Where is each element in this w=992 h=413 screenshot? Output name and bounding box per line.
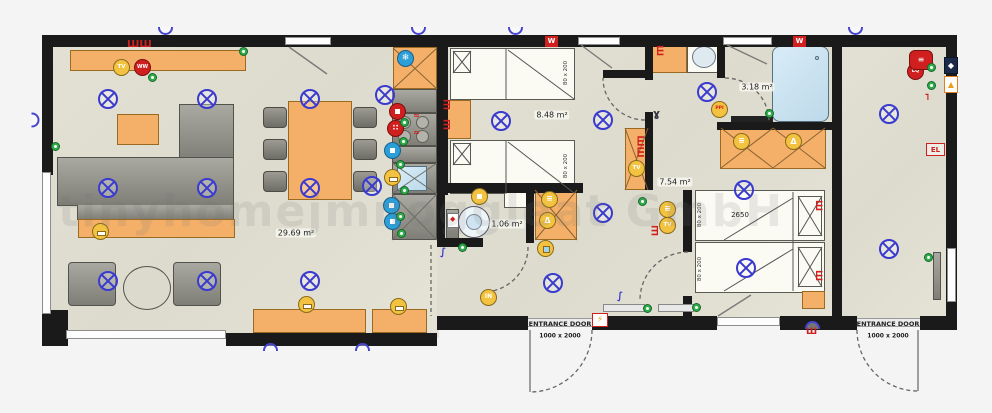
sofa-chaise[interactable] [179,104,234,161]
window[interactable] [42,172,51,314]
entrance-door-size: 1000 x 2000 [539,333,580,340]
droplet-icon: ◆ [450,216,455,223]
socket-icon[interactable] [638,197,647,206]
window[interactable] [947,248,956,302]
ceiling-light-icon[interactable] [362,176,382,196]
socket-icon[interactable] [399,137,408,146]
coffee-table[interactable] [117,114,159,145]
ceiling-light-icon[interactable] [734,180,754,200]
switch-row[interactable] [658,304,694,312]
dining-table[interactable] [288,101,352,200]
washbasin-bowl [692,46,716,68]
room-area-label: 29.69 m² [276,229,316,238]
ceiling-light-icon[interactable] [300,178,320,198]
ceiling-light-icon[interactable] [98,89,118,109]
dining-chair[interactable] [263,139,287,160]
ceiling-light-icon[interactable] [593,110,613,130]
socket-strip-icon: Ш [654,45,663,56]
dimmer-switch-icon[interactable] [92,223,109,240]
wall [592,316,717,330]
socket-icon[interactable] [458,243,467,252]
ceiling-light-icon[interactable] [98,271,118,291]
water-connection-icon[interactable] [384,142,401,159]
socket-icon[interactable] [400,186,409,195]
floor-plan: ◆ [0,0,992,413]
shelves-icon[interactable]: ≡ [733,133,750,150]
dining-chair[interactable] [263,171,287,192]
water-connection-icon[interactable] [383,197,400,214]
flame-icon: ≈ [413,112,420,120]
ceiling-light-icon[interactable] [98,178,118,198]
water-heater-icon[interactable] [537,240,554,257]
ceiling-light-icon[interactable] [300,271,320,291]
ceiling-light-icon[interactable] [491,111,511,131]
dining-chair[interactable] [353,107,377,128]
ceiling-light-icon[interactable] [879,239,899,259]
socket-strip-icon: ШШ [127,40,152,50]
wall-lamp-icon: Ш [813,200,822,211]
tv-outlet-icon[interactable]: TV [628,160,645,177]
water-supply-icon: ◆ [944,57,958,74]
washer-connection-tag: W [793,36,806,47]
socket-icon[interactable] [239,47,248,56]
pillow [453,51,471,73]
radiator[interactable] [933,252,941,300]
socket-icon[interactable] [927,63,936,72]
pipe-connection-icon: ⌐ [921,93,931,101]
ceiling-light-icon[interactable] [543,273,563,293]
bed-size-label: 80 x 200 [563,154,569,178]
wall [42,35,53,175]
socket-icon[interactable] [397,229,406,238]
flame-icon: ≈ [413,129,420,137]
wall [437,183,583,193]
tv-outlet-icon[interactable]: TV [113,59,130,76]
wall [717,122,833,130]
wall-lamp-icon: Ш [444,119,453,130]
ceiling-light-icon[interactable] [300,89,320,109]
vent-icon [848,27,863,35]
round-table[interactable] [123,266,171,310]
hook-icon: ɣ [653,108,660,119]
wall [603,70,653,78]
ceiling-light-icon[interactable] [197,89,217,109]
ceiling-light-icon[interactable] [197,178,217,198]
wall [42,35,957,47]
window[interactable] [66,330,226,339]
entrance-door-label: ENTRANCE DOOR [529,320,592,328]
socket-icon[interactable] [692,303,701,312]
vent-icon [355,343,370,351]
socket-icon[interactable] [924,253,933,262]
window[interactable] [578,37,620,45]
tv-outlet-icon[interactable]: TV [659,217,676,234]
wc-button-icon[interactable] [471,188,488,205]
window[interactable] [285,37,331,45]
room-area-label: 3.18 m² [739,83,774,92]
dimmer-switch-icon[interactable] [298,296,315,313]
wall-lamp-icon: Ш [652,225,661,236]
fridge-snowflake-icon: ❄ [397,50,414,67]
window[interactable] [723,37,772,45]
vent-icon [32,113,40,128]
bed-width-label: 2650 [729,211,751,219]
ceiling-light-icon[interactable] [736,258,756,278]
ceiling-light-icon[interactable] [879,104,899,124]
appliance-switch-icon[interactable] [384,169,401,186]
wall [437,316,528,330]
hanger-icon[interactable]: Δ [539,212,556,229]
socket-icon[interactable] [148,73,157,82]
hanger-icon[interactable]: Δ [785,133,802,150]
wall [683,190,692,252]
socket-icon[interactable] [51,142,60,151]
electrical-panel[interactable]: EL [926,143,945,156]
socket-icon[interactable] [396,212,405,221]
ceiling-light-icon[interactable] [697,82,717,102]
shower[interactable] [772,46,829,122]
room-area-label: 7.54 m² [657,178,692,187]
gas-supply-icon: ▲ [944,76,958,93]
sofa-seat[interactable] [77,205,234,220]
vent-icon [508,27,523,35]
ceiling-light-icon[interactable] [375,85,395,105]
bed-size-label: 80 x 200 [563,61,569,85]
entrance-door-label: ENTRANCE DOOR [857,320,920,328]
sensor-icon: ∫ [617,292,623,302]
bench[interactable] [253,309,366,333]
wall [42,310,68,346]
bed-size-label: 80 x 200 [697,203,703,227]
nightstand[interactable] [802,291,825,309]
vent-icon [158,27,173,35]
antenna-outlet-icon: ШШ [635,135,644,157]
entrance-door-size: 1000 x 2000 [867,333,908,340]
socket-icon[interactable] [643,304,652,313]
ceiling-light-icon[interactable] [593,203,613,223]
wall-lamp-icon: Ш [813,270,822,281]
shelves-icon[interactable]: ≡ [541,191,558,208]
motion-sensor-icon[interactable]: PPI [711,101,728,118]
vent-icon [411,27,426,35]
dining-chair[interactable] [353,139,377,160]
wall [645,112,653,190]
wall [832,38,842,318]
vent-icon [263,343,278,351]
wc-bowl-inner [466,214,482,230]
room-area-label: 1.06 m² [489,220,524,229]
socket-icon[interactable] [396,160,405,169]
socket-icon[interactable] [765,109,774,118]
dimmer-switch-icon[interactable] [390,298,407,315]
socket-icon[interactable] [400,118,409,127]
doorbell-icon[interactable]: ⚡ [592,313,608,327]
sideboard[interactable] [70,50,246,71]
bed-size-label: 80 x 200 [697,257,703,281]
pillow [453,143,471,165]
dining-chair[interactable] [263,107,287,128]
wall [832,316,857,330]
room-area-label: 8.48 m² [534,111,569,120]
shower-drain [815,56,819,60]
washer-connection-tag: W [545,36,558,47]
wall-lamp-icon: Ш [444,99,453,110]
socket-icon[interactable] [927,81,936,90]
sensor-icon: ∫ [440,248,446,258]
window[interactable] [717,317,780,326]
shelves-icon[interactable]: ≡ [659,201,676,218]
outdoor-lamp-icon: Ш [806,328,817,337]
ceiling-light-icon[interactable] [197,271,217,291]
entry-light-icon[interactable]: IN [480,289,497,306]
wall [226,333,437,346]
switch-row[interactable] [603,304,645,312]
wall [526,193,534,243]
